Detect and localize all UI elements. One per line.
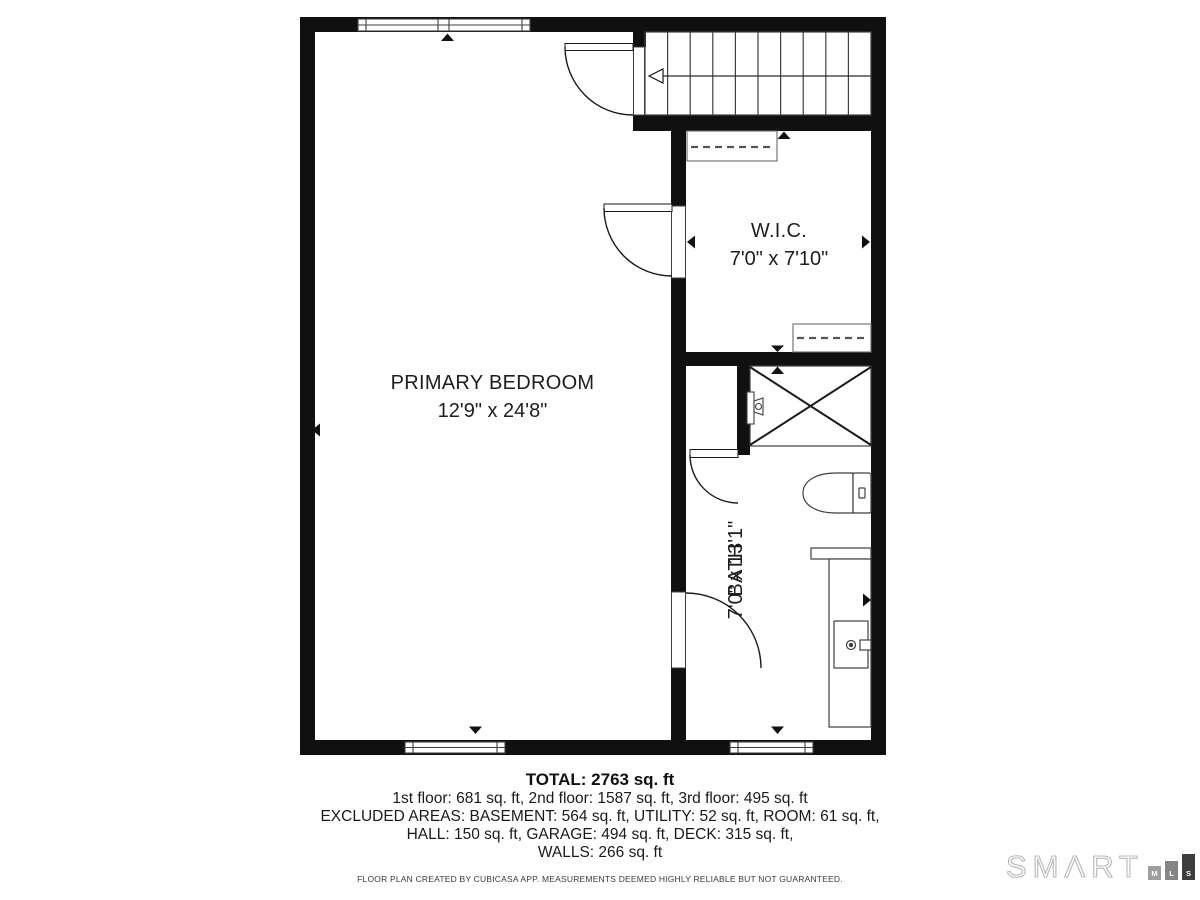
marker-down-icon bbox=[771, 727, 784, 735]
stairs-treads bbox=[668, 32, 849, 115]
floor-areas: 1st floor: 681 sq. ft, 2nd floor: 1587 s… bbox=[0, 790, 1200, 808]
faucet-handle bbox=[860, 640, 871, 650]
wall-right bbox=[871, 17, 886, 755]
marker-down-icon bbox=[771, 346, 784, 353]
wall-stairs-bottom bbox=[633, 115, 871, 131]
toilet-flush-button bbox=[859, 488, 865, 498]
floor-plan-page: PRIMARY BEDROOM 12'9" x 24'8" W.I.C. 7'0… bbox=[0, 0, 1200, 900]
door-swing-stairs bbox=[565, 47, 633, 115]
primary-bedroom-dimensions: 12'9" x 24'8" bbox=[330, 397, 655, 425]
door-leaf-wic bbox=[604, 204, 672, 212]
mls-blocks: M L S bbox=[1148, 854, 1195, 880]
wic-dimensions: 7'0" x 7'10" bbox=[688, 245, 870, 273]
window-bottom-bath bbox=[730, 742, 813, 753]
wall-stub-above-door bbox=[633, 32, 646, 47]
wall-wic-bath bbox=[671, 352, 871, 366]
window-top bbox=[358, 19, 530, 31]
excluded-areas-line2: HALL: 150 sq. ft, GARAGE: 494 sq. ft, DE… bbox=[0, 826, 1200, 844]
window-bottom-bedroom bbox=[405, 742, 505, 753]
total-area: TOTAL: 2763 sq. ft bbox=[0, 769, 1200, 790]
door-swing-wic bbox=[604, 208, 672, 276]
stairs bbox=[645, 32, 871, 115]
floor-plan-drawing bbox=[0, 0, 1200, 900]
door-leaf-bath-closet bbox=[690, 450, 738, 458]
toilet-bowl bbox=[803, 473, 853, 513]
smart-logo-text: SMΛRT bbox=[1006, 849, 1144, 885]
marker-up-icon bbox=[441, 34, 454, 42]
doorway-bath bbox=[672, 592, 686, 668]
vanity-counter-edge bbox=[811, 548, 871, 559]
doorway-stairs bbox=[634, 47, 645, 115]
primary-bedroom-name: PRIMARY BEDROOM bbox=[330, 369, 655, 397]
mls-block-l: L bbox=[1165, 861, 1178, 880]
room-label-wic: W.I.C. 7'0" x 7'10" bbox=[688, 217, 870, 273]
toilet bbox=[803, 473, 871, 513]
bath-dimensions: 7'0" x 13'1" bbox=[722, 480, 750, 660]
wic-name: W.I.C. bbox=[688, 217, 870, 245]
wall-divider-upper bbox=[671, 131, 686, 206]
wall-left bbox=[300, 17, 315, 755]
wall-divider-middle bbox=[671, 278, 686, 592]
mls-block-s: S bbox=[1182, 854, 1195, 880]
doorway-wic bbox=[672, 206, 686, 278]
vanity bbox=[811, 548, 871, 727]
excluded-areas-line1: EXCLUDED AREAS: BASEMENT: 564 sq. ft, UT… bbox=[0, 808, 1200, 826]
mls-block-m: M bbox=[1148, 866, 1161, 880]
shower bbox=[747, 366, 871, 446]
door-leaf-stairs bbox=[565, 44, 633, 51]
smart-mls-logo: SMΛRT M L S bbox=[1006, 849, 1195, 885]
wall-divider-lower bbox=[671, 668, 686, 755]
stairs-direction-arrow-icon bbox=[649, 69, 663, 83]
marker-down-icon bbox=[469, 727, 482, 735]
room-label-primary-bedroom: PRIMARY BEDROOM 12'9" x 24'8" bbox=[330, 369, 655, 425]
marker-up-icon bbox=[778, 132, 791, 140]
